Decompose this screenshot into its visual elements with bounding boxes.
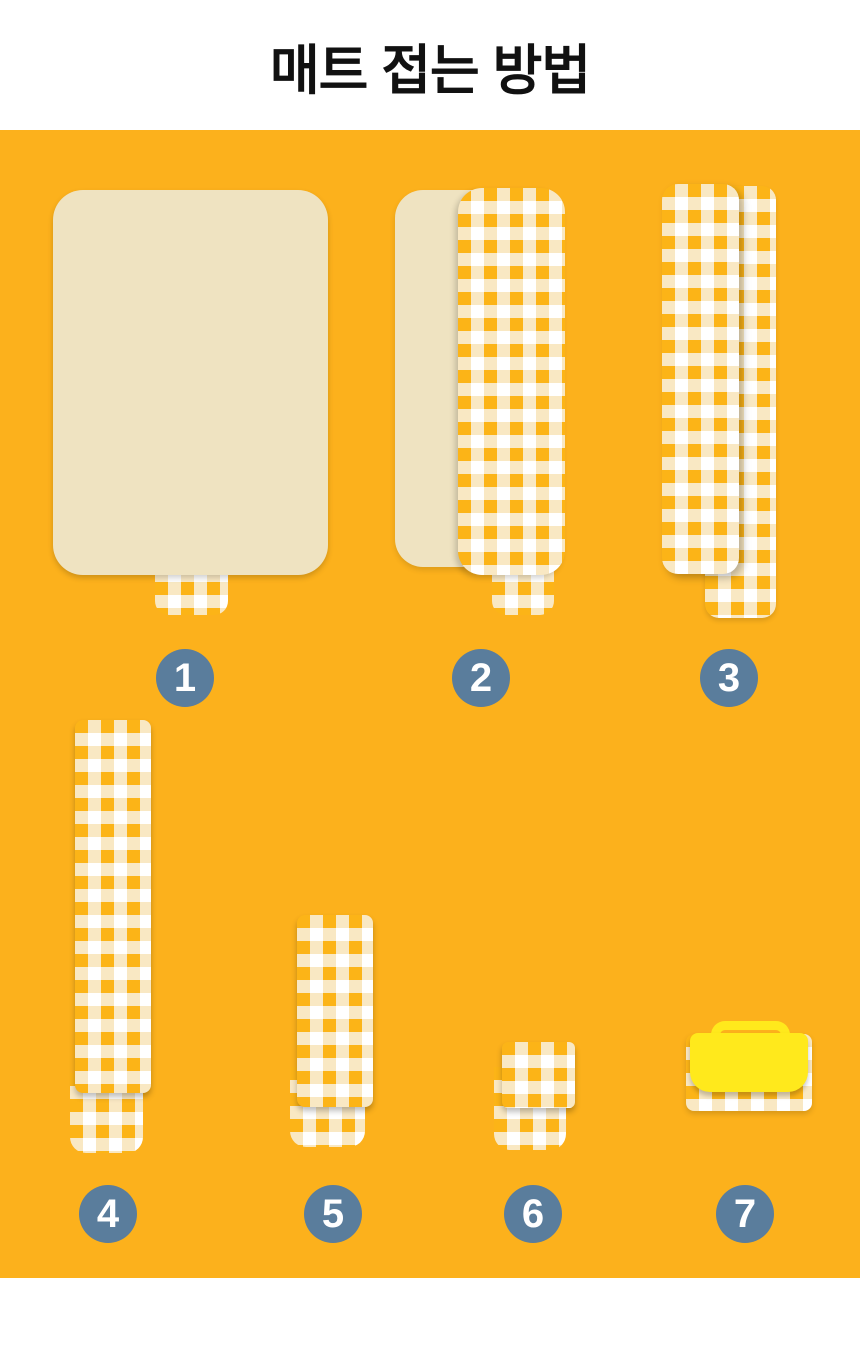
folded-strip-tall bbox=[75, 720, 151, 1093]
step-6-badge: 6 bbox=[504, 1185, 562, 1243]
step-1-badge: 1 bbox=[156, 649, 214, 707]
folded-strip-front bbox=[662, 184, 739, 574]
mat-folding-infographic: 매트 접는 방법 1 2 3 4 bbox=[0, 0, 860, 1371]
folded-strip-medium bbox=[297, 915, 373, 1107]
page-title: 매트 접는 방법 bbox=[0, 0, 860, 130]
step-5-badge: 5 bbox=[304, 1185, 362, 1243]
instruction-panel: 1 2 3 4 5 6 bbox=[0, 130, 860, 1278]
mat-back-unfolded bbox=[53, 190, 328, 575]
mat-gingham-fold bbox=[458, 188, 565, 575]
step-7-badge: 7 bbox=[716, 1185, 774, 1243]
step-2-badge: 2 bbox=[452, 649, 510, 707]
step-4-badge: 4 bbox=[79, 1185, 137, 1243]
mat-closure-flap bbox=[690, 1033, 808, 1092]
step-3-badge: 3 bbox=[700, 649, 758, 707]
folded-square bbox=[502, 1042, 575, 1108]
